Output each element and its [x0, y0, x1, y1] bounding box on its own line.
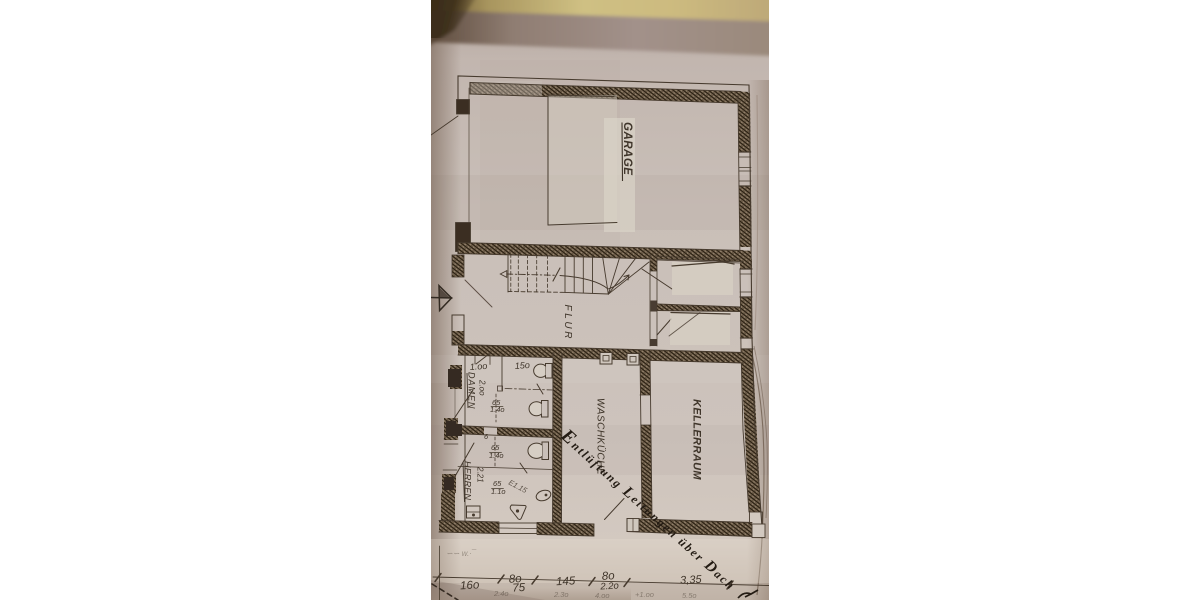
svg-text:1.4o: 1.4o [490, 405, 505, 414]
svg-text:75: 75 [512, 582, 526, 595]
svg-text:3,35: 3,35 [680, 574, 703, 587]
svg-text:1.4o: 1.4o [489, 451, 504, 460]
svg-text:4.oo: 4.oo [595, 591, 610, 600]
svg-text:+1.oo: +1.oo [635, 590, 654, 599]
svg-text:1.oo: 1.oo [469, 361, 487, 372]
svg-text:KELLERRAUM: KELLERRAUM [691, 399, 703, 480]
svg-text:2.3o: 2.3o [553, 590, 569, 599]
svg-text:∽∽ w.·¯: ∽∽ w.·¯ [446, 549, 477, 558]
svg-text:15o: 15o [514, 360, 530, 371]
svg-text:2.21: 2.21 [476, 466, 485, 483]
svg-text:GARAGE: GARAGE [621, 122, 633, 175]
svg-text:2.oo: 2.oo [478, 379, 487, 396]
svg-text:2.4o: 2.4o [493, 589, 509, 598]
svg-text:1.1o: 1.1o [491, 487, 506, 496]
svg-text:FLUR: FLUR [562, 305, 573, 342]
svg-text:16o: 16o [460, 579, 480, 592]
svg-text:5.5o: 5.5o [682, 591, 697, 600]
svg-text:145: 145 [556, 575, 576, 588]
